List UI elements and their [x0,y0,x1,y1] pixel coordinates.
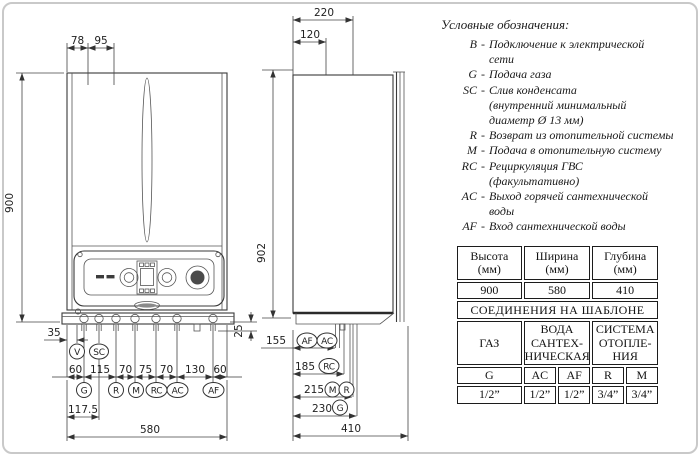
conn-label-m: M [626,367,658,384]
dim-95: 95 [94,35,107,47]
spec-section-row: СОЕДИНЕНИЯ НА ШАБЛОНЕ [457,301,658,319]
knob-middle [158,269,176,287]
front-dim-top: 78 95 [67,35,114,85]
svg-text:70: 70 [119,364,132,376]
display-unit [137,261,157,294]
spec-dim-header-row: Высота (мм) Ширина (мм) Глубина (мм) [457,246,658,280]
svg-text:M: M [132,387,139,397]
legend-item-af: AF - Вход сантехнической воды [441,219,679,234]
svg-text:RC: RC [323,363,335,373]
svg-text:R: R [113,387,119,397]
front-dim-width: 580 [67,424,227,437]
side-port-af: AF [297,333,317,348]
conn-label-ac: AC [524,367,556,384]
legend-item-r: R - Возврат из отопительной системы [441,128,679,143]
brand-badge [135,302,160,310]
svg-text:70: 70 [160,364,173,376]
svg-text:AF: AF [208,387,219,397]
svg-text:115: 115 [90,364,110,376]
legend: Условные обозначения: B - Подключение к … [441,17,679,235]
knob-left [120,269,138,287]
svg-text:G: G [81,387,88,397]
group-gas: ГАЗ [457,321,522,365]
side-port-ac: AC [317,333,337,348]
value-depth: 410 [592,282,658,299]
spec-conn-value-row: 1/2” 1/2” 1/2” 3/4” 3/4” [457,386,658,403]
front-port-sc: SC [90,344,109,359]
svg-text:AF: AF [302,337,313,347]
side-port-r: R [339,382,354,397]
knob-main [186,266,209,289]
dim-220: 220 [314,7,334,19]
side-dim-top: 220 120 [293,7,353,75]
front-port-m: M [129,383,144,398]
front-port-af: AF [203,383,224,398]
front-port-r: R [109,383,124,398]
front-dim-chain: 60 115 70 75 70 130 60 [52,364,242,377]
value-width: 580 [524,282,591,299]
front-dim-height: 900 [4,73,64,322]
pipe-stubs [82,324,215,331]
dim-902: 902 [256,243,268,263]
connection-nuts [80,314,217,322]
brand-logo-marks [96,275,115,278]
side-bottom-cover [296,313,394,324]
dim-900: 900 [4,193,16,213]
conn-size-af: 1/2” [558,386,590,403]
side-port-g: G [333,400,348,415]
spec-table: Высота (мм) Ширина (мм) Глубина (мм) 900… [455,244,660,406]
connection-bar [62,309,234,331]
header-height: Высота (мм) [457,246,522,280]
dim-120: 120 [300,29,320,41]
side-view: 220 120 902 155 AF [256,7,408,441]
spec-group-header-row: ГАЗ ВОДА САНТЕХ- НИЧЕСКАЯ СИСТЕМА ОТОПЛЕ… [457,321,658,365]
conn-size-g: 1/2” [457,386,522,403]
svg-text:M: M [329,386,336,396]
panel-screw-left [78,252,82,256]
front-port-g: G [77,383,92,398]
spec-conn-label-row: G AC AF R M [457,367,658,384]
control-panel [74,251,224,310]
front-view: 78 95 900 35 25 [4,35,257,441]
section-title: СОЕДИНЕНИЯ НА ШАБЛОНЕ [457,301,658,319]
group-heating-system: СИСТЕМА ОТОПЛЕ- НИЯ [592,321,658,365]
side-port-rc: RC [319,359,339,374]
conn-size-ac: 1/2” [524,386,556,403]
boiler-installation-diagram: 78 95 900 35 25 [0,0,700,456]
side-dim-height: 902 [256,70,293,318]
svg-text:SC: SC [93,348,104,358]
condensate-trap [194,324,200,331]
dim-25: 25 [233,324,245,337]
legend-item-m: M - Подача в отопительную систему [441,143,679,158]
svg-text:60: 60 [213,364,226,376]
svg-text:230: 230 [312,403,332,415]
conn-label-r: R [592,367,623,384]
technical-drawing: 78 95 900 35 25 [0,0,455,456]
front-dim-117-5: 117.5 [67,404,99,417]
front-port-rc: RC [146,383,167,398]
svg-text:60: 60 [69,364,82,376]
conn-size-m: 3/4” [626,386,658,403]
svg-text:G: G [337,404,344,414]
legend-title: Условные обозначения: [441,17,679,33]
svg-text:AC: AC [172,387,184,397]
svg-text:R: R [344,386,350,396]
spec-dim-value-row: 900 580 410 [457,282,658,299]
header-width: Ширина (мм) [524,246,591,280]
svg-text:AC: AC [321,337,333,347]
legend-item-ac: AC - Выход горячей сантехнической воды [441,189,679,219]
svg-text:75: 75 [139,364,152,376]
conn-label-g: G [457,367,522,384]
side-dim-depth: 410 [293,423,408,436]
svg-text:117.5: 117.5 [68,404,98,416]
svg-text:RC: RC [151,387,163,397]
front-port-v: V [70,344,85,359]
header-depth: Глубина (мм) [592,246,658,280]
svg-text:580: 580 [140,424,160,436]
svg-text:185: 185 [295,361,315,373]
legend-item-b: B - Подключение к электрической сети [441,37,679,67]
front-panel-seam [142,78,152,242]
legend-item-sc: SC - Слив конденсата (внутренний минимал… [441,83,679,129]
svg-text:410: 410 [341,423,361,435]
front-port-ac: AC [167,383,188,398]
legend-item-g: G - Подача газа [441,67,679,82]
svg-text:130: 130 [185,364,205,376]
svg-text:155: 155 [266,335,286,347]
panel-screw-right [216,252,220,256]
dim-35: 35 [47,327,60,339]
svg-text:215: 215 [304,384,324,396]
conn-size-r: 3/4” [592,386,623,403]
value-height: 900 [457,282,522,299]
group-sanitary-water: ВОДА САНТЕХ- НИЧЕСКАЯ [524,321,591,365]
conn-label-af: AF [558,367,590,384]
side-port-m: M [325,382,340,397]
dim-78: 78 [71,35,84,47]
legend-item-rc: RC - Рециркуляция ГВС (факультативно) [441,159,679,189]
